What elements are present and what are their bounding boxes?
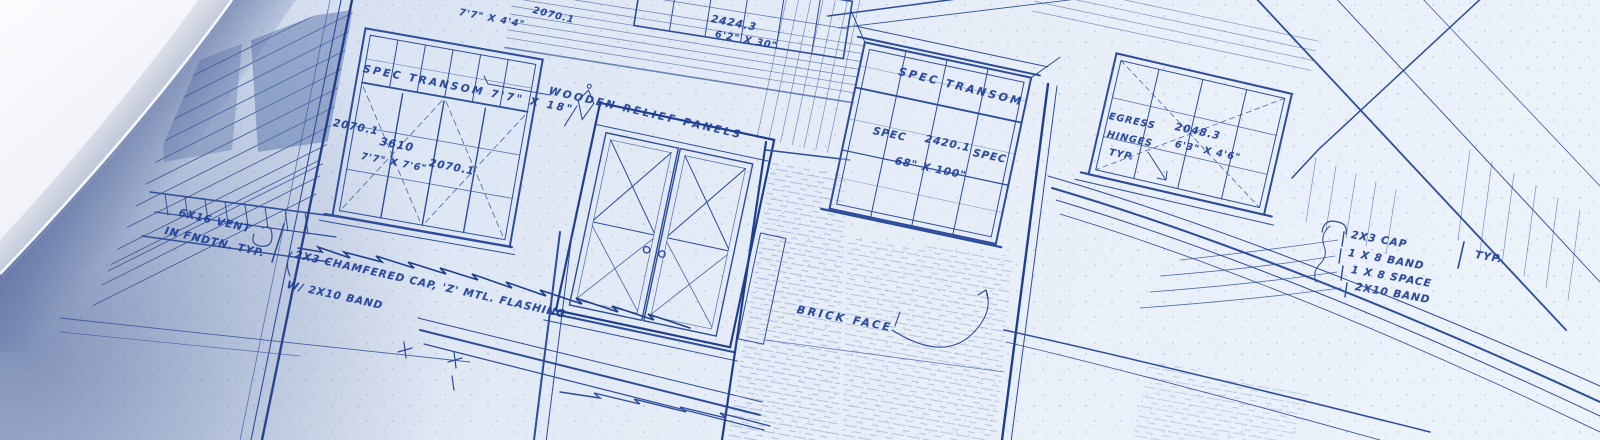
blueprint-photo: SPEC TRANSOM 7'7" X 18" 2070.1 3610 7'7"… bbox=[0, 0, 1600, 440]
